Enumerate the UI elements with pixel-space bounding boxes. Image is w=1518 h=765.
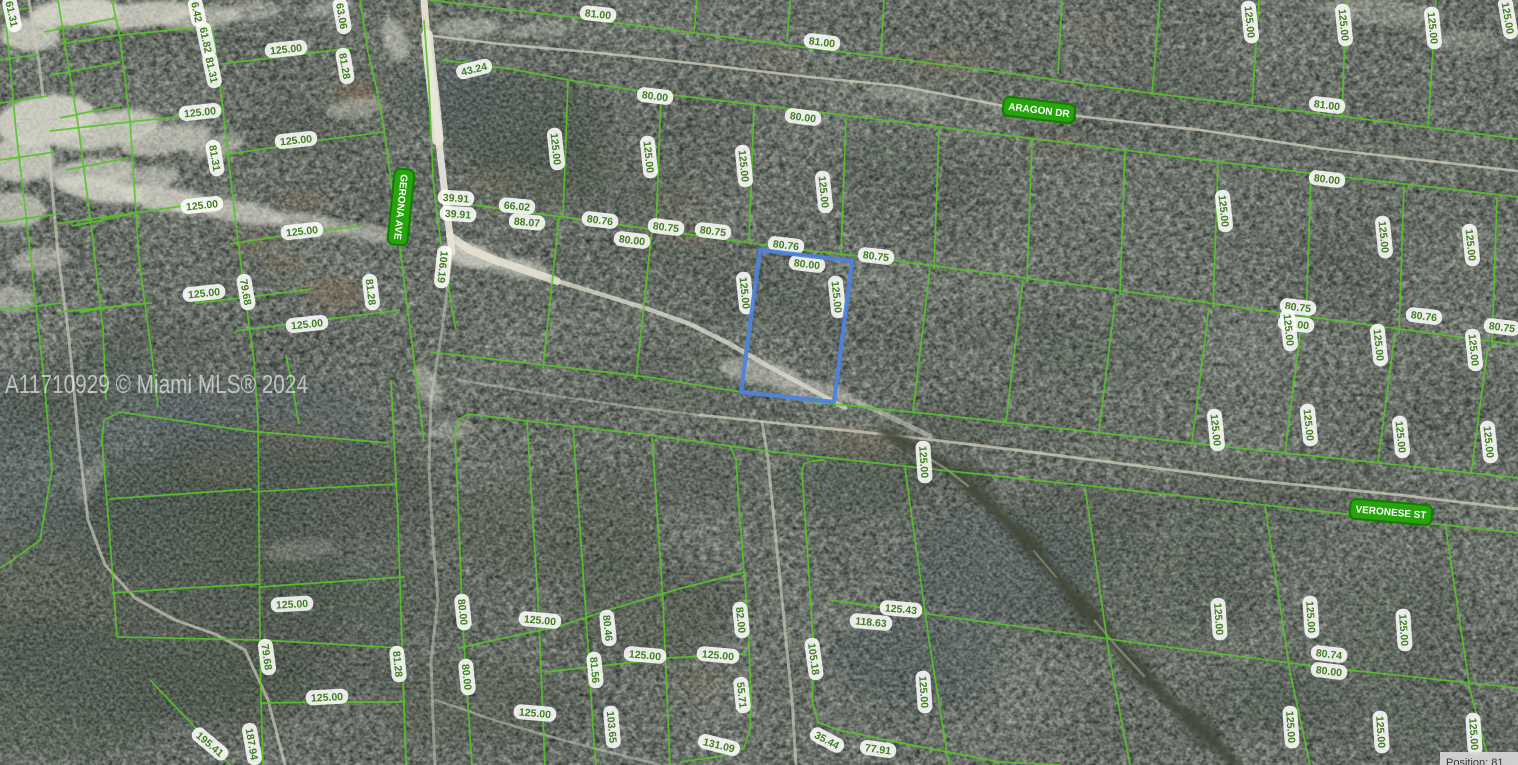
svg-text:88.07: 88.07 [513, 216, 540, 230]
svg-text:125.00: 125.00 [1396, 614, 1410, 647]
svg-text:125.00: 125.00 [1466, 718, 1480, 751]
svg-text:Position: 81: Position: 81 [1446, 757, 1503, 765]
svg-text:125.00: 125.00 [1303, 601, 1317, 634]
svg-text:125.00: 125.00 [916, 446, 930, 479]
svg-text:125.00: 125.00 [311, 691, 344, 705]
svg-text:66.02: 66.02 [503, 200, 530, 214]
svg-text:125.00: 125.00 [1211, 603, 1225, 636]
svg-text:125.00: 125.00 [276, 598, 309, 612]
svg-text:39.91: 39.91 [444, 208, 471, 222]
svg-text:81.56: 81.56 [587, 656, 601, 683]
svg-text:125.00: 125.00 [1373, 716, 1387, 749]
svg-text:A11710929 © Miami MLS® 2024: A11710929 © Miami MLS® 2024 [5, 370, 308, 399]
svg-text:125.00: 125.00 [1283, 711, 1297, 744]
svg-text:39.91: 39.91 [442, 192, 469, 206]
svg-text:125.00: 125.00 [916, 676, 930, 709]
